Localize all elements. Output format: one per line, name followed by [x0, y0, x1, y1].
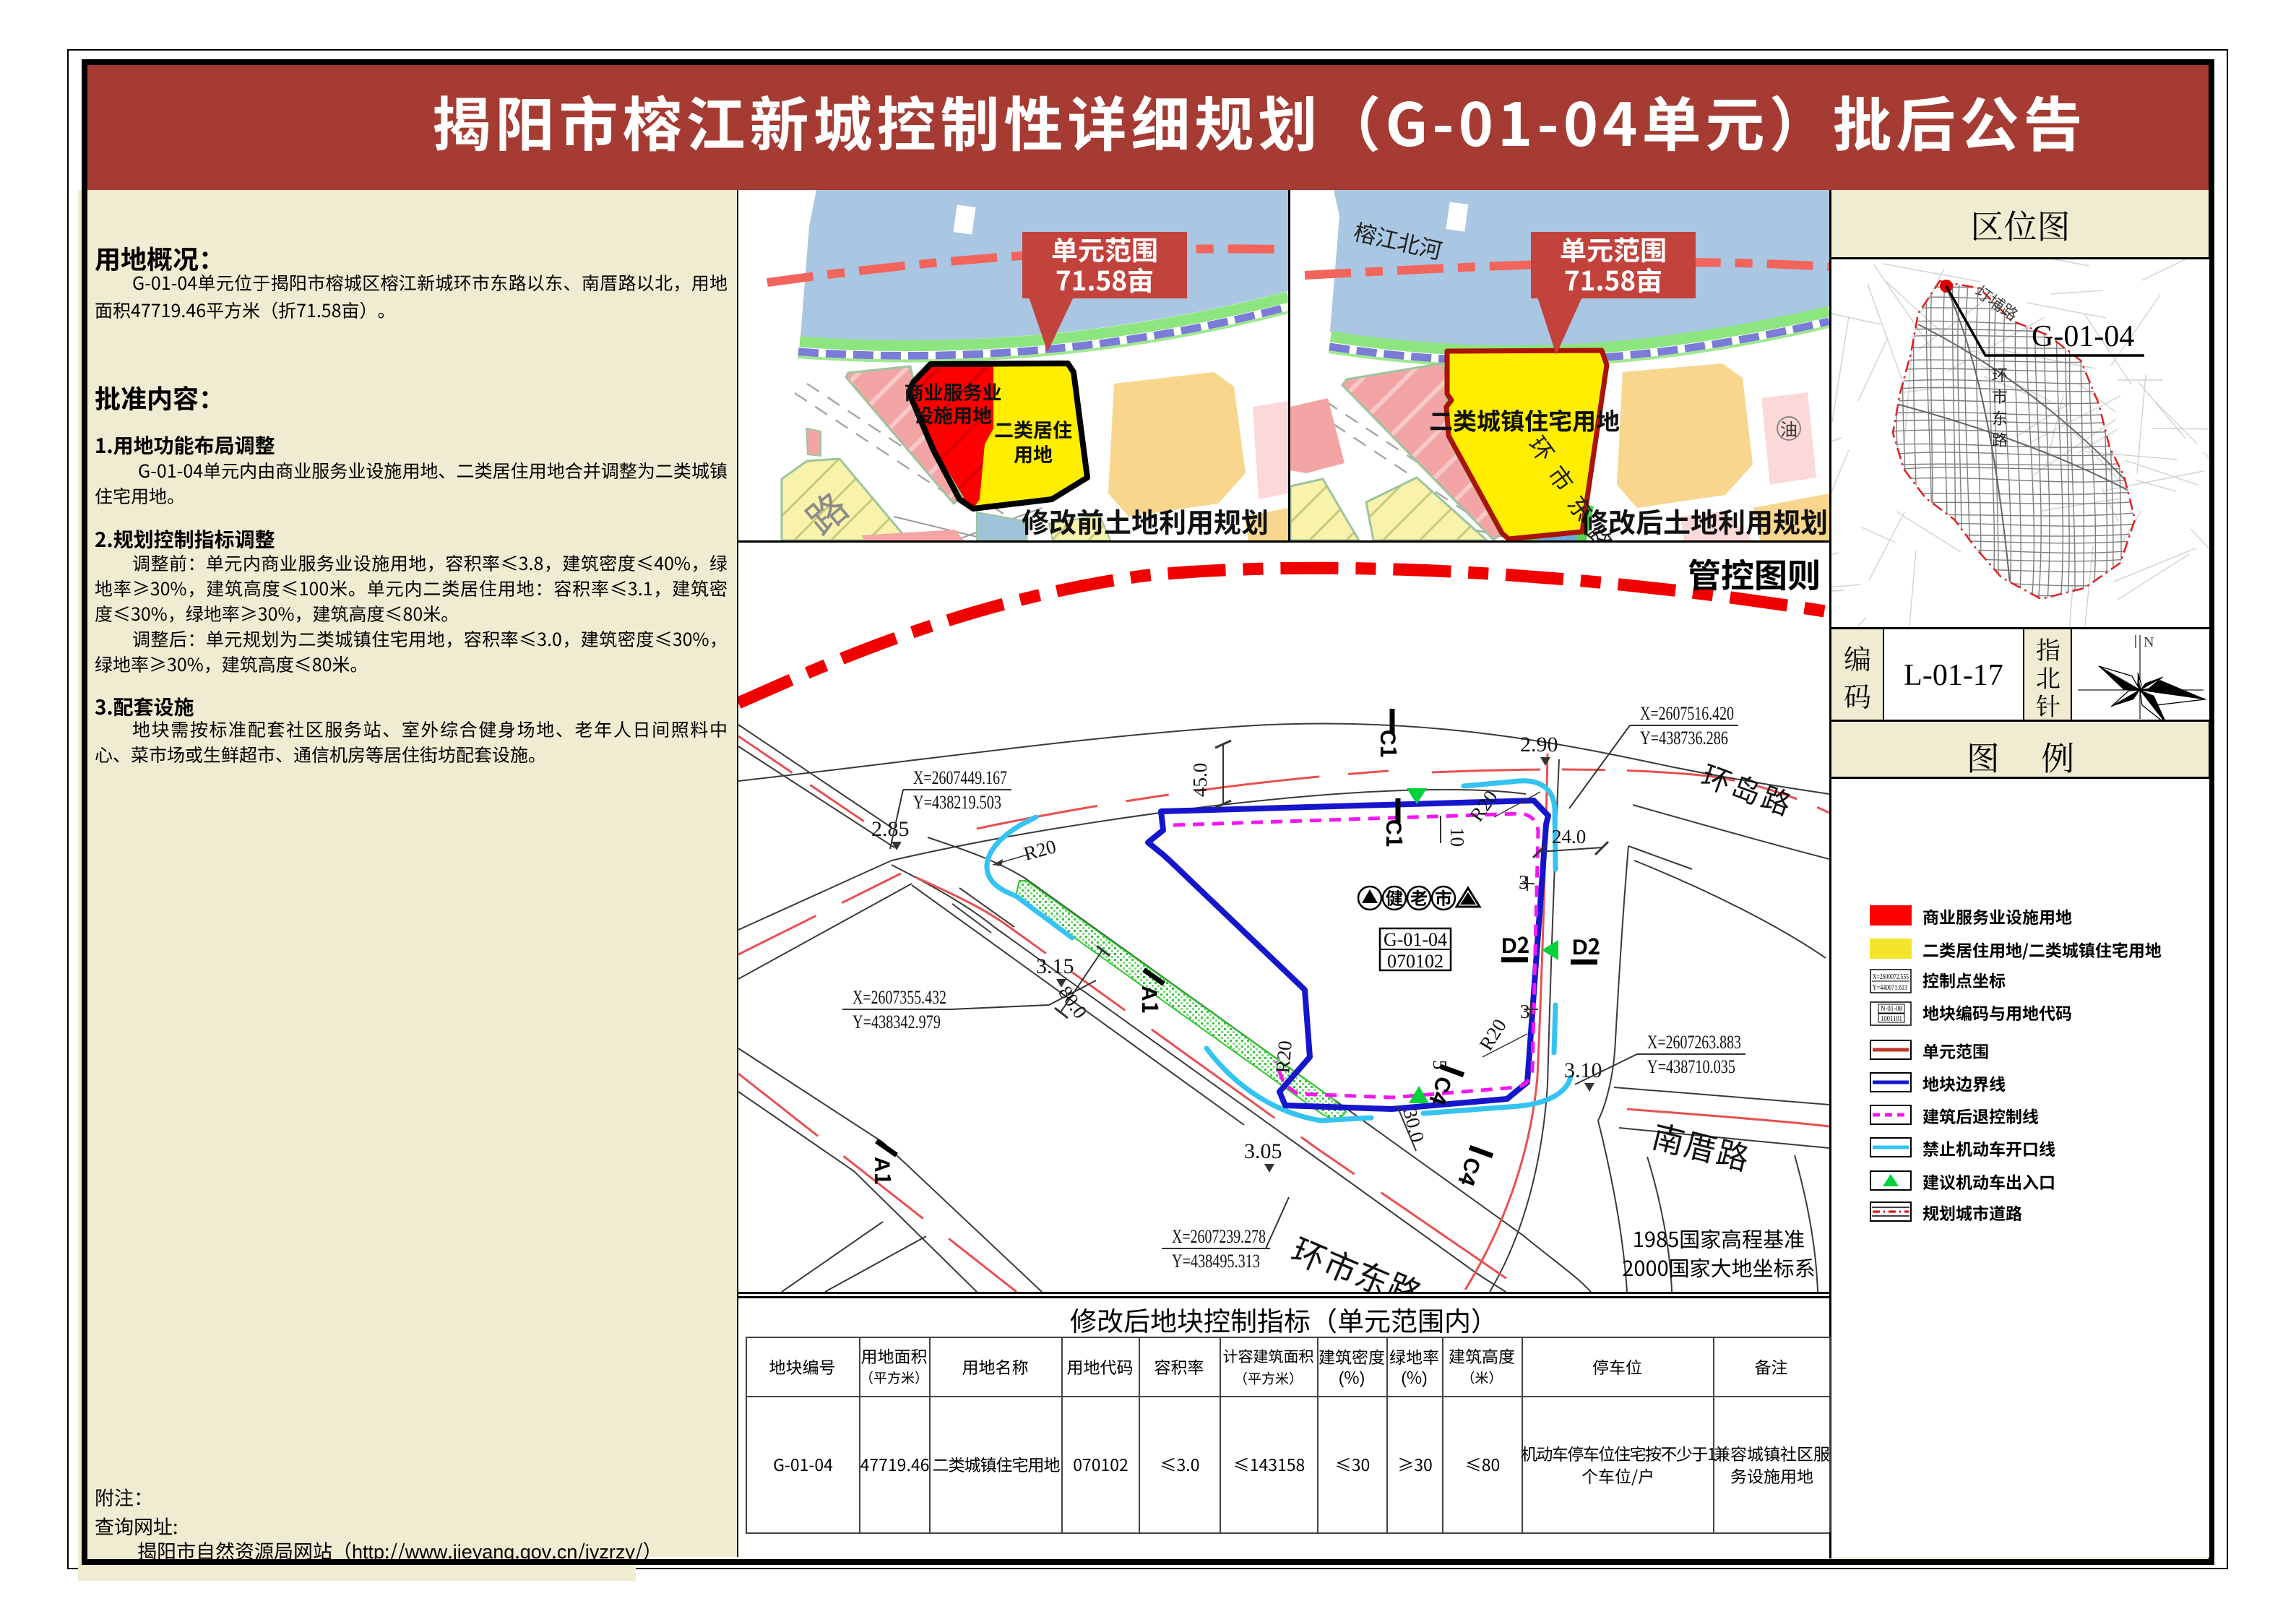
svg-text:用地: 用地	[1014, 439, 1053, 467]
svg-text:A1: A1	[868, 1157, 900, 1185]
svg-text:D2: D2	[1572, 929, 1600, 961]
svg-text:1985国家高程基准: 1985国家高程基准	[1633, 1223, 1805, 1254]
svg-text:X=2607449.167: X=2607449.167	[913, 767, 1007, 788]
svg-text:路: 路	[1992, 428, 2008, 451]
svg-text:A1: A1	[1136, 985, 1168, 1014]
svg-text:C1: C1	[1374, 730, 1406, 758]
svg-text:45.0: 45.0	[1189, 763, 1211, 797]
svg-text:Y=438736.286: Y=438736.286	[1640, 728, 1728, 749]
svg-text:老: 老	[1410, 884, 1428, 910]
svg-text:二类城镇住宅用地: 二类城镇住宅用地	[1429, 402, 1620, 437]
svg-text:3.05: 3.05	[1244, 1139, 1282, 1163]
svg-text:X=2607263.883: X=2607263.883	[1647, 1032, 1741, 1053]
svg-text:修改前土地利用规划: 修改前土地利用规划	[1022, 501, 1269, 540]
svg-text:070102: 070102	[1387, 951, 1443, 972]
svg-text:环: 环	[1992, 363, 2008, 386]
svg-text:设施用地: 设施用地	[914, 400, 992, 428]
svg-text:东: 东	[1992, 406, 2008, 429]
svg-text:Y=438342.979: Y=438342.979	[853, 1011, 941, 1032]
svg-text:Y=438495.313: Y=438495.313	[1172, 1251, 1260, 1272]
svg-text:管控图则: 管控图则	[1688, 550, 1821, 598]
svg-text:D2: D2	[1501, 928, 1529, 959]
svg-text:71.58亩: 71.58亩	[1564, 259, 1662, 298]
svg-text:1001101: 1001101	[1881, 1015, 1902, 1023]
svg-text:24.0: 24.0	[1552, 826, 1586, 847]
svg-text:3.10: 3.10	[1564, 1058, 1602, 1082]
svg-text:Y=438710.035: Y=438710.035	[1647, 1056, 1735, 1077]
svg-text:Y=440671.613: Y=440671.613	[1873, 983, 1907, 992]
svg-text:C1: C1	[1380, 819, 1412, 847]
svg-text:2.90: 2.90	[1520, 733, 1558, 756]
svg-text:X=2600072.555: X=2600072.555	[1873, 972, 1909, 981]
svg-text:G-01-04: G-01-04	[2032, 320, 2134, 353]
svg-text:10: 10	[1446, 827, 1468, 847]
svg-text:71.58亩: 71.58亩	[1056, 259, 1154, 298]
svg-text:市: 市	[1992, 384, 2008, 407]
svg-text:N-01-08: N-01-08	[1881, 1005, 1902, 1013]
svg-text:5: 5	[1429, 1060, 1451, 1070]
svg-text:R20: R20	[1272, 1040, 1296, 1074]
svg-text:健: 健	[1386, 884, 1403, 910]
svg-text:G-01-04: G-01-04	[1384, 929, 1447, 950]
svg-text:X=2607355.432: X=2607355.432	[853, 987, 946, 1008]
svg-text:3: 3	[1520, 1001, 1530, 1022]
svg-text:3.15: 3.15	[1036, 954, 1074, 978]
svg-text:修改后土地利用规划: 修改后土地利用规划	[1581, 501, 1828, 540]
svg-text:N: N	[2144, 634, 2154, 650]
svg-text:市: 市	[1435, 884, 1452, 910]
svg-text:油: 油	[1780, 415, 1797, 441]
svg-text:2000国家大地坐标系: 2000国家大地坐标系	[1622, 1252, 1815, 1282]
svg-text:X=2607239.278: X=2607239.278	[1172, 1226, 1266, 1247]
svg-text:X=2607516.420: X=2607516.420	[1640, 703, 1734, 724]
svg-text:Y=438219.503: Y=438219.503	[913, 792, 1001, 813]
svg-text:2.85: 2.85	[871, 817, 910, 841]
